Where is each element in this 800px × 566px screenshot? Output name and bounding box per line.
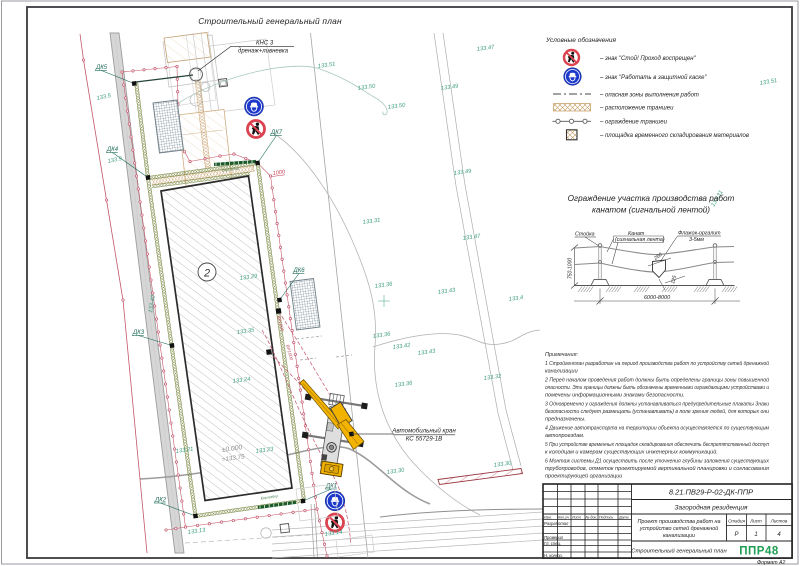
svg-text:ДК4: ДК4 <box>106 147 119 153</box>
svg-text:– расположение траншеи: – расположение траншеи <box>599 106 674 112</box>
svg-text:Примечания:: Примечания: <box>545 352 579 358</box>
svg-text:(сигнальная лента): (сигнальная лента) <box>615 237 665 243</box>
svg-text:безопасности следует размеща: безопасности следует размещать (устанавл… <box>545 408 769 415</box>
svg-text:Листов: Листов <box>770 519 788 524</box>
svg-text:ППР48: ППР48 <box>739 546 779 558</box>
svg-text:Р: Р <box>734 532 738 538</box>
svg-text:3 Одновременно у ограждения: 3 Одновременно у ограждения должны устан… <box>545 402 769 408</box>
svg-text:Проект производства работ на: Проект производства работ на <box>638 519 721 525</box>
svg-text:ДК5: ДК5 <box>95 65 108 71</box>
svg-text:Изм.: Изм. <box>544 515 552 519</box>
svg-text:опасности. Эти границы долж: опасности. Эти границы должны быть обозн… <box>545 384 769 391</box>
svg-text:канализации: канализации <box>545 369 578 375</box>
svg-text:к колодцам и камерам существую: к колодцам и камерам существующих инжене… <box>545 449 718 456</box>
svg-text:3-5мм: 3-5мм <box>689 237 704 243</box>
svg-text:2 Перед началом проведения: 2 Перед началом проведения работ должны … <box>544 377 769 384</box>
svg-text:Формат А2: Формат А2 <box>757 560 785 566</box>
svg-text:Стадия: Стадия <box>728 519 745 524</box>
svg-text:ДК2: ДК2 <box>154 498 167 504</box>
svg-text:Стойка: Стойка <box>575 231 595 238</box>
svg-text:Загородная резиденция: Загородная резиденция <box>674 504 748 512</box>
svg-text:устройство сетей дренажной: устройство сетей дренажной <box>639 525 718 532</box>
svg-text:2: 2 <box>203 268 210 280</box>
svg-text:1 Стройгенплан разработан на: 1 Стройгенплан разработан на период прои… <box>545 360 769 367</box>
svg-text:Подпись: Подпись <box>599 515 613 519</box>
svg-text:трубопроводов, отметок про: трубопроводов, отметок проектируемой вер… <box>545 465 769 472</box>
svg-text:ДК3: ДК3 <box>132 330 145 336</box>
svg-text:750-1000: 750-1000 <box>568 258 574 279</box>
svg-text:– знак "Работать в защитной к: – знак "Работать в защитной каске" <box>599 74 707 81</box>
svg-text:Условные обозначения: Условные обозначения <box>545 36 616 44</box>
svg-text:Автомобильный кран: Автомобильный кран <box>391 428 456 435</box>
svg-text:Дата: Дата <box>618 515 628 519</box>
svg-text:Гл. спец.: Гл. спец. <box>544 541 561 546</box>
svg-text:– ограждение траншеи: – ограждение траншеи <box>599 120 668 126</box>
svg-text:1: 1 <box>754 532 757 538</box>
svg-text:ДК7: ДК7 <box>270 130 283 136</box>
svg-text:– знак "Стой! Проход воспреще: – знак "Стой! Проход воспрещен" <box>599 55 697 62</box>
svg-text:автопроездам.: автопроездам. <box>545 433 584 439</box>
svg-text:предназначены.: предназначены. <box>545 417 586 423</box>
svg-text:Лист: Лист <box>571 515 581 519</box>
svg-text:8.21.ПВ29-Р-02-ДК-ППР: 8.21.ПВ29-Р-02-ДК-ППР <box>669 488 753 497</box>
svg-text:6 Монтаж системы Д1 осущес: 6 Монтаж системы Д1 осуществить после ут… <box>545 459 769 465</box>
svg-text:канализации: канализации <box>663 533 695 539</box>
svg-text:дренаж+ливневка: дренаж+ливневка <box>238 49 289 55</box>
svg-text:проектирующей организации: проектирующей организации <box>545 473 622 480</box>
svg-text:– опасная зоны выполнения раб: – опасная зоны выполнения работ <box>599 93 699 99</box>
svg-text:Разработал: Разработал <box>544 521 569 526</box>
svg-text:Н. контр.: Н. контр. <box>544 553 563 558</box>
svg-text:– площадка временного складир: – площадка временного складирования мате… <box>599 133 749 139</box>
svg-text:Кол.уч: Кол.уч <box>558 515 569 519</box>
svg-text:ДК6: ДК6 <box>293 268 306 274</box>
svg-text:КС 55729-1В: КС 55729-1В <box>406 436 443 443</box>
svg-text:4 Движение автотранспорта н: 4 Движение автотранспорта на территории … <box>545 426 769 432</box>
svg-text:Проверил: Проверил <box>544 535 564 540</box>
svg-text:6000-8000: 6000-8000 <box>644 295 671 301</box>
svg-text:помечены информационными знака: помечены информационными знаками безопас… <box>545 393 685 399</box>
svg-text:КНС 3: КНС 3 <box>256 41 274 47</box>
svg-text:канатом (сигнальной лентой): канатом (сигнальной лентой) <box>592 206 710 215</box>
svg-text:№ док.: № док. <box>586 515 598 519</box>
svg-text:Флажок-оргалит: Флажок-оргалит <box>678 231 721 237</box>
svg-text:Лист: Лист <box>749 519 762 524</box>
svg-text:5 При устройстве временных: 5 При устройстве временных площадок скла… <box>545 441 769 448</box>
svg-text:Строительный генеральный план: Строительный генеральный план <box>198 16 342 26</box>
svg-text:Ограждение участка производств: Ограждение участка производства работ <box>568 194 735 203</box>
svg-text:Строительный генеральный план: Строительный генеральный план <box>631 548 727 555</box>
